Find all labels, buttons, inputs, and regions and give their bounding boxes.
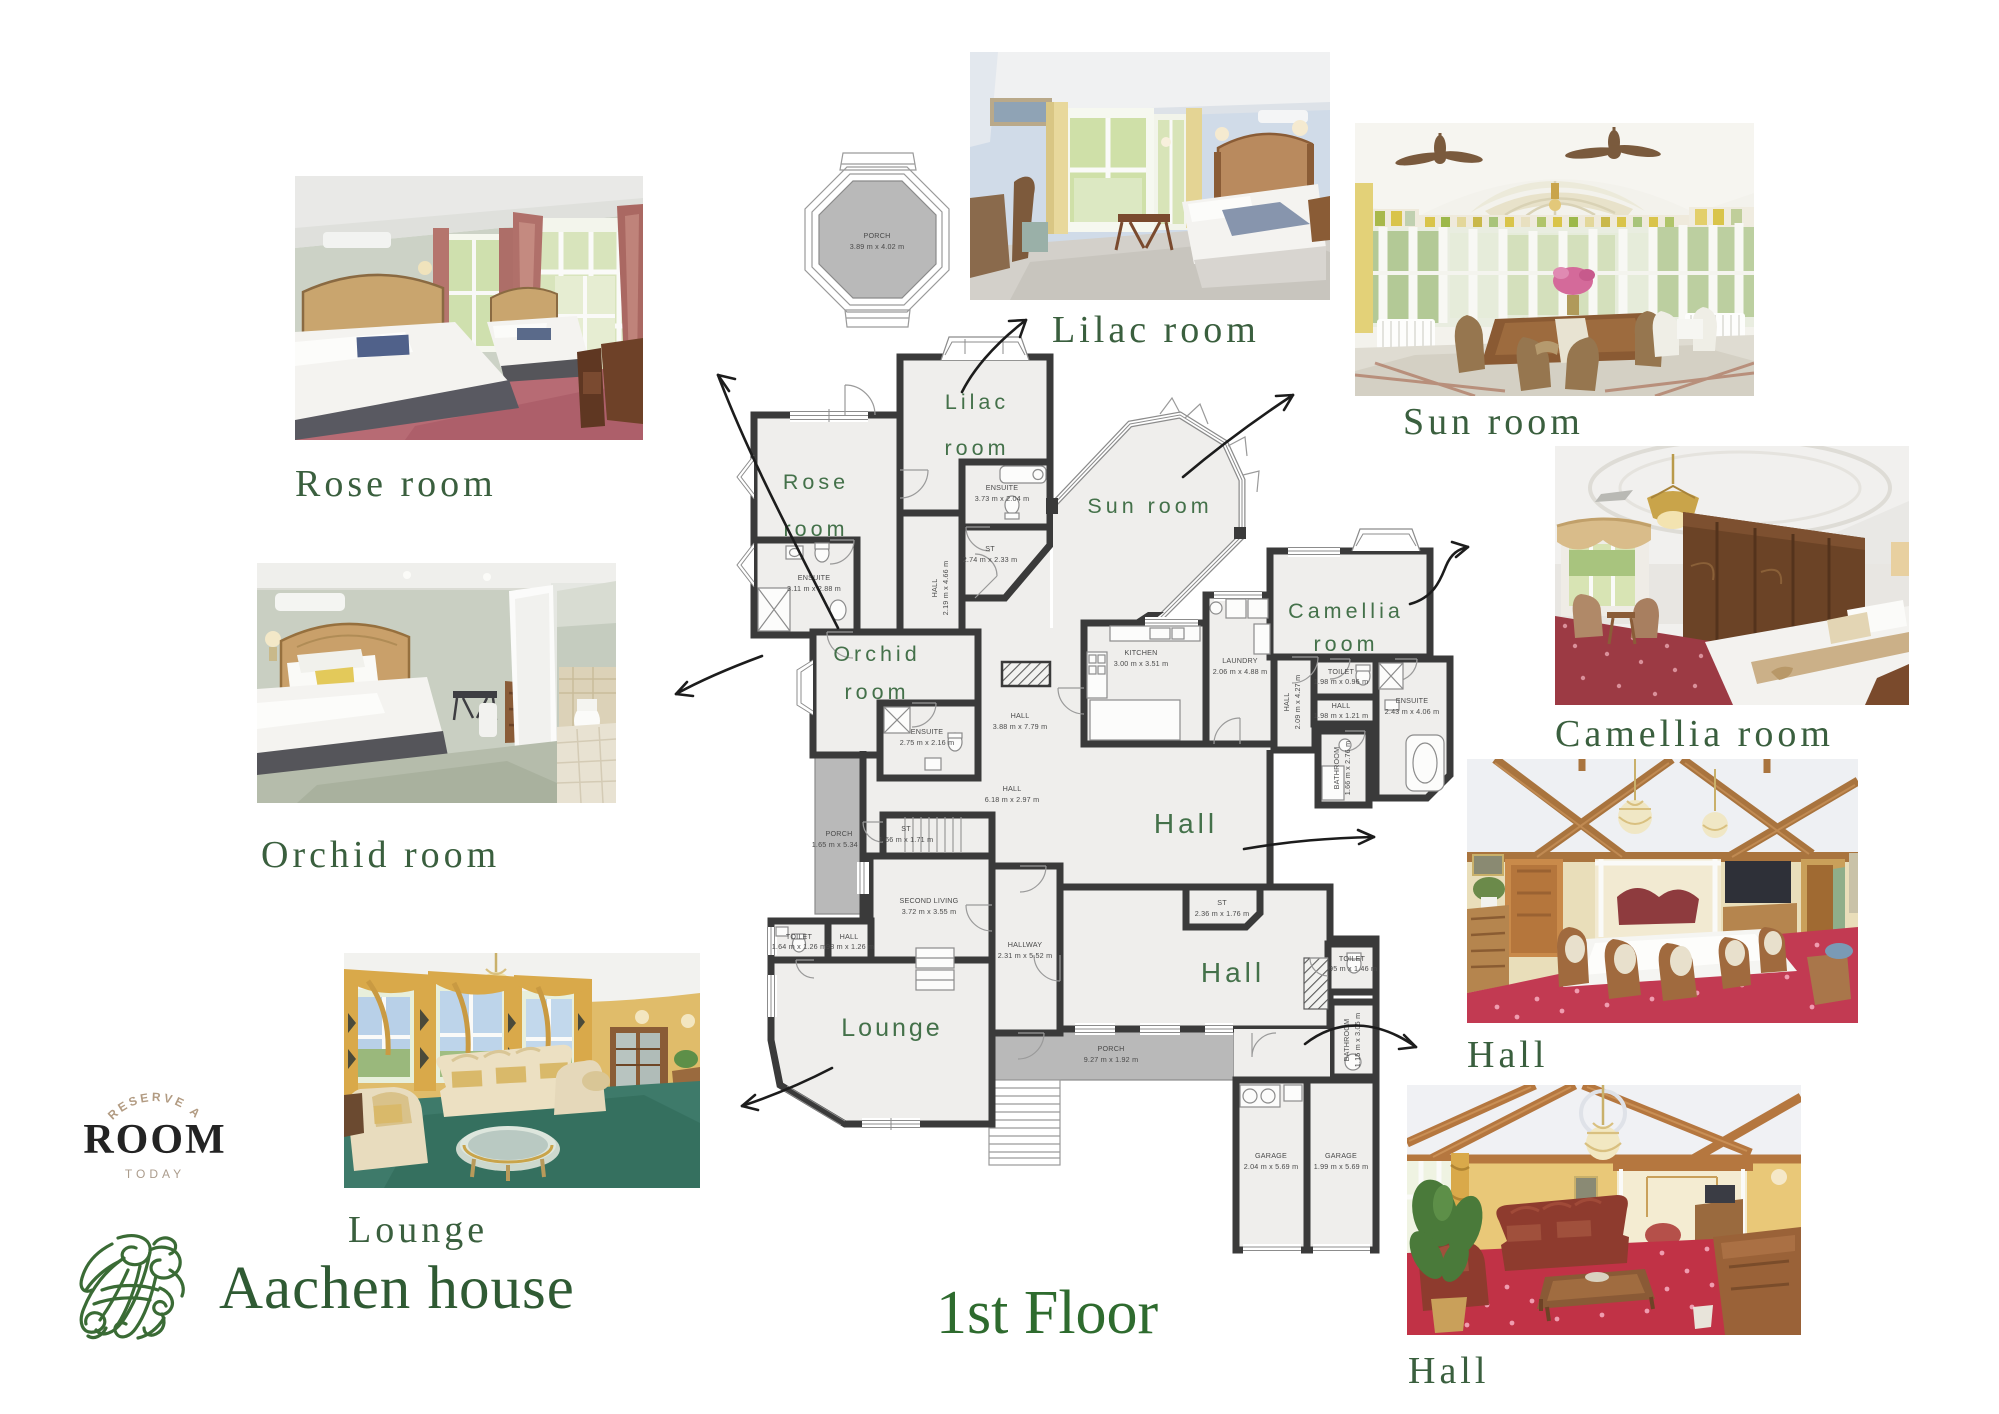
svg-text:1.64 m x 1.26 m: 1.64 m x 1.26 m — [772, 942, 827, 951]
svg-text:PORCH: PORCH — [826, 829, 853, 838]
svg-text:Orchid: Orchid — [833, 642, 920, 666]
svg-text:3.00 m x 3.51 m: 3.00 m x 3.51 m — [1114, 659, 1169, 668]
svg-text:2.09 m x 4.27 m: 2.09 m x 4.27 m — [1293, 675, 1302, 730]
svg-text:2.36 m x 1.76 m: 2.36 m x 1.76 m — [1195, 909, 1250, 918]
svg-text:3.73 m x 2.04 m: 3.73 m x 2.04 m — [975, 494, 1030, 503]
svg-text:HALL: HALL — [1003, 784, 1022, 793]
svg-text:Lilac: Lilac — [945, 390, 1009, 414]
svg-text:HALL: HALL — [930, 579, 939, 598]
svg-text:9.27 m x 1.92 m: 9.27 m x 1.92 m — [1084, 1055, 1139, 1064]
svg-text:ENSUITE: ENSUITE — [1396, 696, 1429, 705]
svg-text:2.31 m x 5.52 m: 2.31 m x 5.52 m — [998, 951, 1053, 960]
svg-text:room: room — [1314, 632, 1379, 656]
svg-text:1.66 m x 2.76 m: 1.66 m x 2.76 m — [1343, 741, 1352, 796]
svg-text:1.98 m x 0.96 m: 1.98 m x 0.96 m — [1314, 677, 1369, 686]
svg-text:GARAGE: GARAGE — [1325, 1151, 1357, 1160]
svg-text:.98 m x 1.26 m: .98 m x 1.26 m — [824, 942, 874, 951]
svg-text:room: room — [945, 436, 1010, 460]
svg-text:room: room — [845, 680, 910, 704]
svg-text:PORCH: PORCH — [1098, 1044, 1125, 1053]
svg-text:TOILET: TOILET — [1339, 954, 1366, 963]
svg-text:HALLWAY: HALLWAY — [1008, 940, 1042, 949]
svg-text:3.89 m x 4.02 m: 3.89 m x 4.02 m — [850, 242, 905, 251]
svg-text:HALL: HALL — [840, 932, 859, 941]
svg-text:TOILET: TOILET — [786, 932, 813, 941]
svg-text:6.18 m x 2.97 m: 6.18 m x 2.97 m — [985, 795, 1040, 804]
svg-text:1.65 m x 5.34 m: 1.65 m x 5.34 m — [812, 840, 867, 849]
svg-text:BATHROOM: BATHROOM — [1332, 747, 1341, 790]
svg-text:1.98 m x 1.21 m: 1.98 m x 1.21 m — [1314, 711, 1369, 720]
svg-text:LAUNDRY: LAUNDRY — [1222, 656, 1258, 665]
svg-text:Sun room: Sun room — [1087, 494, 1212, 518]
svg-text:ROOM: ROOM — [83, 1117, 226, 1163]
svg-text:PORCH: PORCH — [864, 231, 891, 240]
svg-text:HALL: HALL — [1332, 701, 1351, 710]
svg-text:HALL: HALL — [1011, 711, 1030, 720]
svg-text:2.74 m x 2.33 m: 2.74 m x 2.33 m — [963, 555, 1018, 564]
svg-text:Hall: Hall — [1201, 957, 1265, 988]
svg-text:2.04 m x 5.69 m: 2.04 m x 5.69 m — [1244, 1162, 1299, 1171]
svg-text:3.88 m x 7.79 m: 3.88 m x 7.79 m — [993, 722, 1048, 731]
svg-text:TOILET: TOILET — [1328, 667, 1355, 676]
svg-text:ST: ST — [1217, 898, 1227, 907]
svg-text:1.66 m x 1.71 m: 1.66 m x 1.71 m — [879, 835, 934, 844]
svg-text:TODAY: TODAY — [125, 1167, 185, 1181]
svg-text:2.75 m x 2.16 m: 2.75 m x 2.16 m — [900, 738, 955, 747]
svg-text:Hall: Hall — [1154, 808, 1218, 839]
svg-text:2.43 m x 4.06 m: 2.43 m x 4.06 m — [1385, 707, 1440, 716]
svg-text:2.19 m x 4.66 m: 2.19 m x 4.66 m — [941, 561, 950, 616]
svg-text:Lounge: Lounge — [841, 1014, 942, 1042]
svg-text:HALL: HALL — [1282, 693, 1291, 712]
svg-text:ENSUITE: ENSUITE — [911, 727, 944, 736]
svg-text:Camellia: Camellia — [1288, 599, 1404, 623]
svg-text:2.06 m x 4.88 m: 2.06 m x 4.88 m — [1213, 667, 1268, 676]
svg-text:GARAGE: GARAGE — [1255, 1151, 1287, 1160]
svg-text:ST: ST — [985, 544, 995, 553]
svg-text:Rose: Rose — [783, 470, 849, 494]
svg-text:ENSUITE: ENSUITE — [986, 483, 1019, 492]
svg-text:.95 m x 1.46 m: .95 m x 1.46 m — [1327, 964, 1377, 973]
svg-text:KITCHEN: KITCHEN — [1125, 648, 1158, 657]
svg-text:SECOND LIVING: SECOND LIVING — [900, 896, 959, 905]
svg-text:3.72 m x 3.55 m: 3.72 m x 3.55 m — [902, 907, 957, 916]
svg-text:1.15 m x 3.05 m: 1.15 m x 3.05 m — [1353, 1013, 1362, 1068]
svg-text:ST: ST — [901, 824, 911, 833]
svg-text:1.99 m x 5.69 m: 1.99 m x 5.69 m — [1314, 1162, 1369, 1171]
svg-text:3.11 m x 2.88 m: 3.11 m x 2.88 m — [787, 584, 841, 593]
